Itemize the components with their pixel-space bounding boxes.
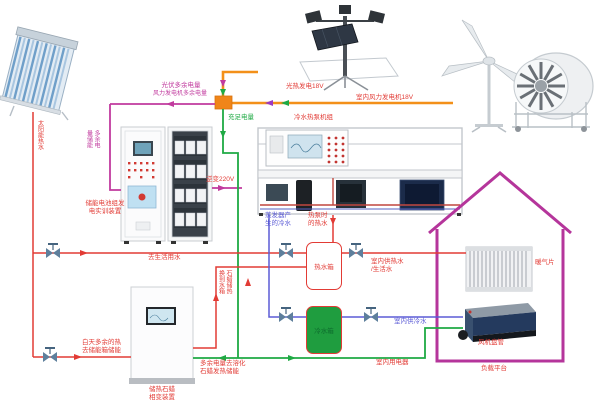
hot-water-tank-label: 热水箱 [314, 261, 334, 271]
label-load-platform: 负载平台 [481, 365, 507, 373]
pv-tracker [300, 5, 398, 90]
arrow-right-icon [74, 354, 82, 360]
valve-icon [279, 244, 293, 258]
valve-icon [349, 244, 363, 258]
label-battery-cabinet: 储能电池组发 电实训装置 [80, 200, 130, 216]
label-wind-surplus: 风力发电机多余电量 [144, 91, 216, 99]
radiator [466, 247, 532, 291]
arrow-left-icon [281, 100, 289, 106]
label-indoor-cold-water: 室内供冷水 [394, 318, 427, 326]
label-heat-pump-unit: 冷水热泵机组 [294, 114, 333, 122]
arrow-right-icon [80, 250, 88, 256]
valve-icon [364, 308, 378, 322]
label-radiator: 暖气片 [535, 259, 555, 267]
label-paraffin-heat-to-tank: 石蜡储热 换到水箱 [216, 270, 231, 314]
battery-cabinet [168, 127, 212, 244]
label-heat-pump-hot-water: 热泵时 的热水 [308, 212, 334, 228]
label-melt-paraffin: 多余电量去溶化 石蜡发热储能 [200, 360, 252, 376]
label-indoor-hot-water: 室内供热水 /生活水 [371, 258, 407, 274]
solar-collector [0, 27, 78, 120]
system-diagram: 热水箱 冷水箱 光伏多余电量 风力发电机多余电量 充足电量 光热发电18V 室内… [0, 0, 600, 419]
pipe-generation-orange [223, 72, 453, 103]
label-solar-hot-water: 太阳能热水 [35, 120, 43, 168]
arrow-left-icon [265, 100, 273, 106]
label-indoor-wind-generator: 室内风力发电机18V [356, 94, 413, 102]
control-cabinet [121, 127, 165, 244]
label-paraffin-device: 储热石蜡 相变装置 [141, 386, 183, 402]
power-junction-node [215, 96, 232, 109]
cold-water-tank: 冷水箱 [306, 306, 342, 354]
arrow-left-icon [166, 101, 174, 107]
label-fan-coil: 风机盘管 [478, 339, 504, 347]
arrow-down-icon [220, 89, 226, 96]
fan-coil-unit [458, 303, 536, 342]
paraffin-storage-cabinet [129, 287, 195, 384]
arrow-up-icon [245, 278, 251, 286]
heat-pump-bench [258, 128, 462, 216]
valve-icon [46, 244, 60, 258]
label-solar-thermal-generation: 光热发电18V [286, 83, 324, 91]
valve-icon [43, 348, 57, 362]
valve-icon [279, 308, 293, 322]
label-day-surplus-heat: 白天多余的热 去储能箱储能 [82, 339, 128, 355]
arrow-right-icon [288, 355, 296, 361]
wind-source-fan [512, 53, 593, 132]
label-to-domestic-water: 去生活用水 [148, 254, 181, 262]
arrow-down-icon [220, 131, 226, 138]
hot-water-tank: 热水箱 [306, 242, 342, 290]
arrow-right-icon [218, 185, 226, 191]
label-indoor-appliance: 室内用电器 [376, 359, 409, 367]
cold-water-tank-label: 冷水箱 [314, 325, 334, 335]
arrow-down-icon [220, 80, 226, 87]
label-pv-surplus: 光伏多余电量 [150, 82, 212, 90]
label-surplus-power-storage: 多余电 量储能 [84, 130, 99, 170]
label-evaporator-cold-water: 蒸发器产 生的冷水 [265, 212, 299, 228]
label-sufficient-power: 充足电量 [228, 114, 254, 122]
label-inverter-220v: 逆变220V [206, 176, 234, 184]
